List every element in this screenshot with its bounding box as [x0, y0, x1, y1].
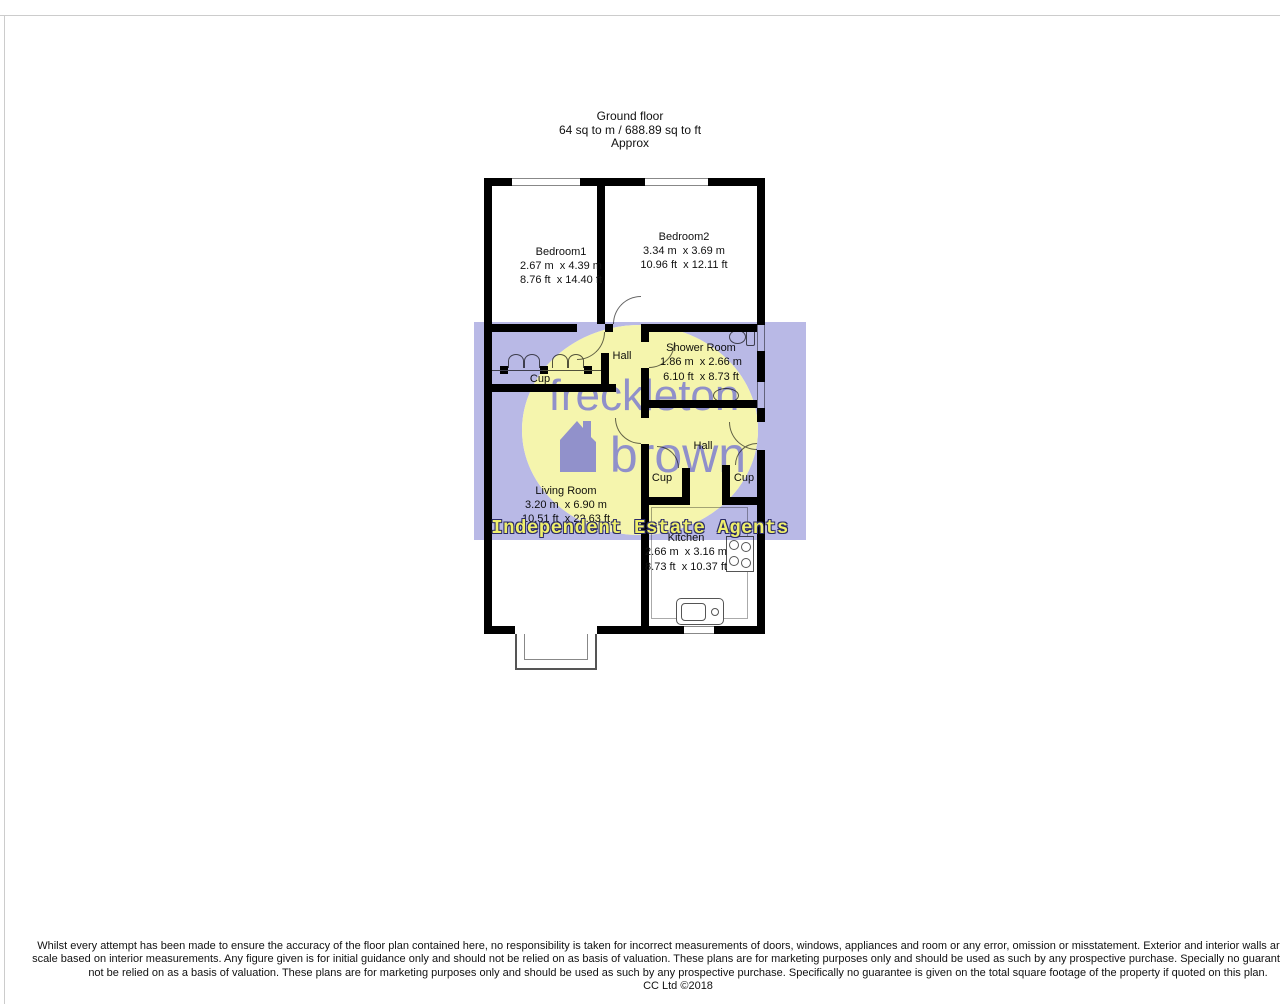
door-arc [613, 296, 641, 324]
window [645, 178, 708, 186]
wall [597, 186, 605, 324]
disclaimer-line-2: scale based on interior measurements. An… [0, 953, 1280, 966]
kitchen-imperial: 8.73 ft x 10.37 ft [645, 561, 727, 574]
footer-disclaimer: Whilst every attempt has been made to en… [0, 940, 1280, 994]
bedroom1-imperial: 8.76 ft x 14.40 ft [520, 274, 602, 287]
hob-burner [729, 540, 739, 550]
window [512, 178, 580, 186]
hob-burner [741, 558, 751, 568]
disclaimer-line-3: not be relied on as a basis of valuation… [0, 967, 1280, 980]
bedroom2-label: Bedroom2 [659, 231, 710, 244]
copyright-line: CC Ltd ©2018 [0, 980, 1280, 993]
bedroom2-metric: 3.34 m x 3.69 m [643, 245, 725, 258]
wall [757, 178, 765, 325]
hob-burner [729, 556, 739, 566]
porch-step [524, 634, 588, 660]
bedroom2-imperial: 10.96 ft x 12.11 ft [640, 259, 727, 272]
watermark-tagline: Independent Estate Agents [474, 517, 806, 539]
watermark-word-2: brown [610, 427, 746, 483]
wall [580, 178, 645, 186]
kitchen-metric: 2.66 m x 3.16 m [645, 546, 727, 559]
disclaimer-line-1: Whilst every attempt has been made to en… [0, 940, 1280, 953]
sink-drain [711, 608, 719, 616]
window [684, 626, 714, 634]
hob-burner [741, 542, 751, 552]
bedroom1-metric: 2.67 m x 4.39 m [520, 260, 602, 273]
sink-bowl [681, 603, 706, 621]
watermark: freckleton brown [474, 322, 806, 540]
watermark-word-1: freckleton [549, 371, 740, 420]
bedroom1-label: Bedroom1 [536, 246, 587, 259]
